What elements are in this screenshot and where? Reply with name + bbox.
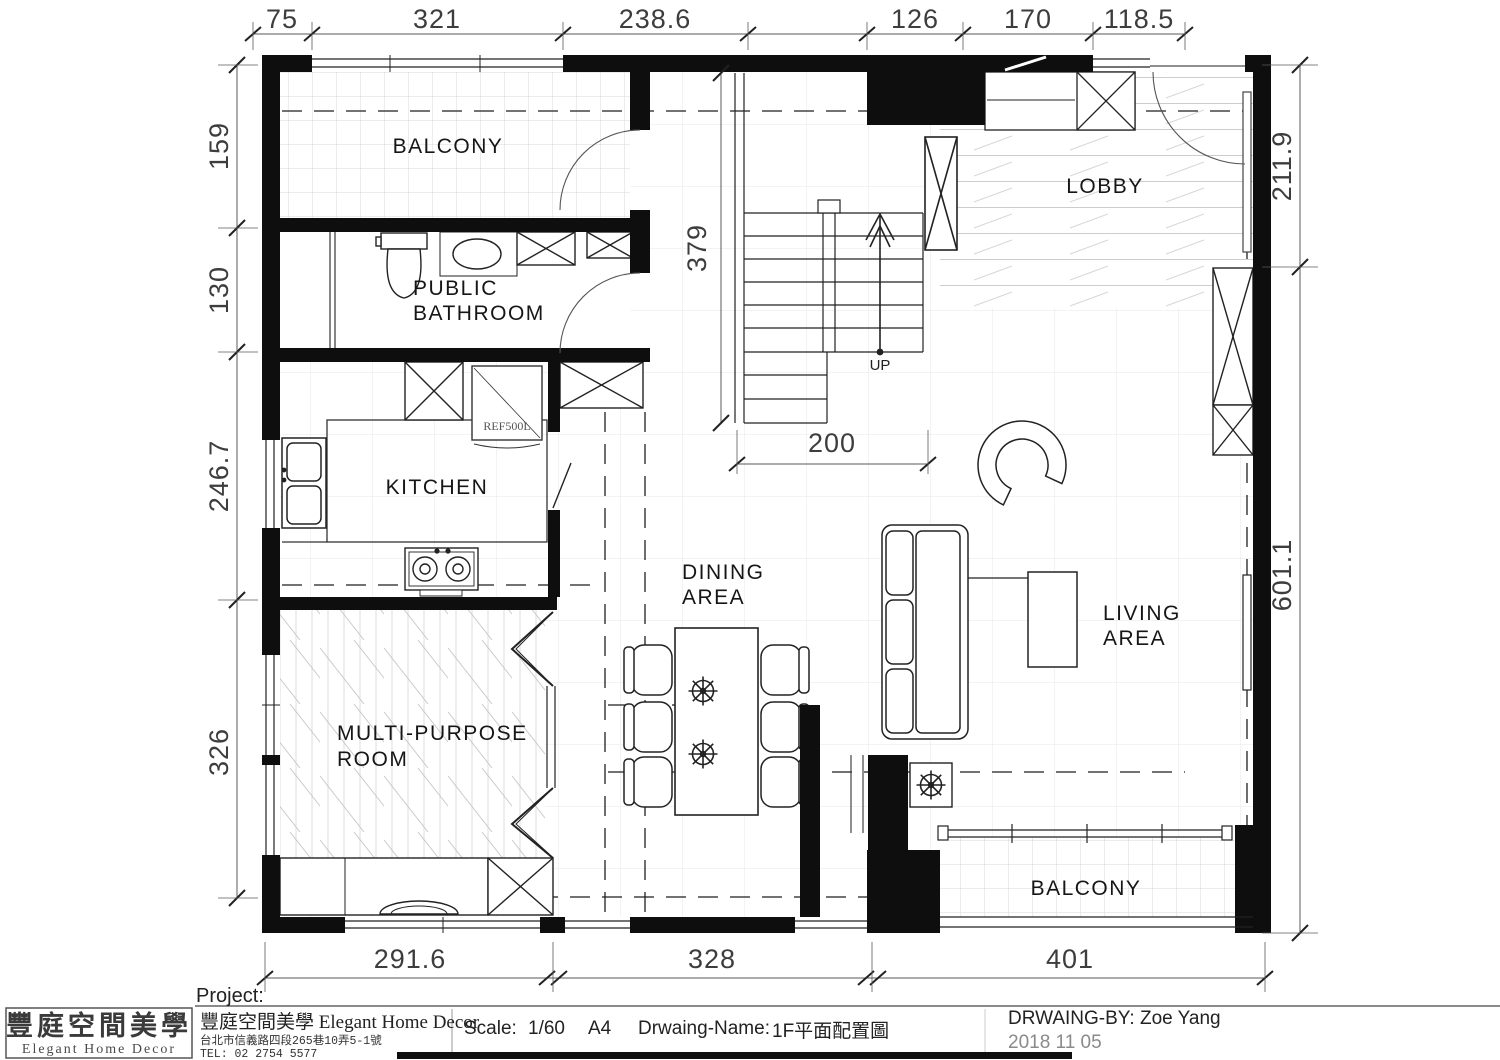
- dining-set: [624, 628, 809, 815]
- dim-label: 238.6: [619, 4, 692, 34]
- mpr-cabinet: [280, 858, 553, 915]
- dim-label: 159: [204, 122, 234, 170]
- living-wall-closets: [1213, 268, 1253, 455]
- stove: [405, 548, 478, 596]
- dim-label: 170: [1004, 4, 1052, 34]
- company-address: 台北市信義路四段265巷10弄5-1號: [200, 1033, 382, 1048]
- dining-chair: [624, 757, 672, 807]
- dim-label: 321: [413, 4, 461, 34]
- dim-label: 118.5: [1104, 4, 1175, 34]
- logo-english-text: Elegant Home Decor: [22, 1042, 176, 1057]
- dim-label: 379: [682, 224, 712, 272]
- drawn-by: DRWAING-BY: Zoe Yang: [1008, 1008, 1221, 1029]
- room-label-multi-1: MULTI-PURPOSE: [337, 722, 528, 745]
- kitchen-sink: [282, 438, 326, 528]
- room-label-dining-1: DINING: [682, 561, 765, 584]
- room-label-kitchen: KITCHEN: [386, 476, 489, 499]
- bottom-window-3: [795, 921, 867, 928]
- dim-label: 126: [891, 4, 939, 34]
- scale-label: Scale:: [464, 1018, 517, 1039]
- dim-label: 75: [266, 4, 298, 34]
- room-label-balcony-top: BALCONY: [393, 135, 504, 158]
- dining-table: [675, 628, 758, 815]
- room-label-living-1: LIVING: [1103, 602, 1181, 625]
- dim-label: 601.1: [1267, 539, 1297, 612]
- dim-label: 291.6: [374, 944, 447, 974]
- room-label-lobby: LOBBY: [1066, 175, 1144, 198]
- room-label-living-2: AREA: [1103, 627, 1166, 650]
- room-label-balcony-bottom: BALCONY: [1031, 877, 1142, 900]
- kitchen-window: [266, 440, 274, 528]
- dim-label: 326: [204, 728, 234, 776]
- title-block: 豐庭空間美學 Elegant Home Decor Project: 豐庭空間美…: [6, 985, 1500, 1060]
- title-block-bottom-bar: [397, 1052, 1072, 1059]
- table-wheel-icon: [689, 740, 718, 769]
- bottom-window-2: [565, 921, 630, 928]
- dim-label: 246.7: [204, 440, 234, 513]
- tv-on-wall: [1243, 575, 1251, 690]
- dining-chair: [761, 645, 809, 695]
- paper-size: A4: [588, 1018, 612, 1039]
- side-table-wheel-icon: [917, 771, 946, 800]
- balcony-top-window: [312, 55, 563, 72]
- room-label-dining-2: AREA: [682, 586, 745, 609]
- drawing-name-value: 1F平面配置圖: [772, 1021, 889, 1042]
- stair-shaft-wall: [867, 55, 985, 125]
- lobby-side-window-frame: [1243, 92, 1251, 252]
- balcony-railing: [940, 917, 1253, 927]
- company-tel: TEL: 02 2754 5577: [200, 1048, 317, 1060]
- stair-duct-box: [925, 137, 957, 250]
- dim-label: 401: [1046, 944, 1094, 974]
- company-name: 豐庭空間美學 Elegant Home Decor: [200, 1011, 480, 1033]
- refrigerator: [472, 366, 542, 448]
- table-wheel-icon: [689, 677, 718, 706]
- bottom-window-1: [345, 917, 540, 933]
- coffee-table: [1028, 572, 1077, 667]
- sofa: [882, 525, 968, 739]
- kitchen-tall-cabinet: [405, 362, 463, 420]
- kitchen-dining-closet: [560, 362, 643, 408]
- project-label: Project:: [196, 985, 264, 1007]
- mpr-window-2: [266, 765, 274, 855]
- drawing-date: 2018 11 05: [1008, 1032, 1102, 1053]
- room-label-bathroom-1: PUBLIC: [413, 277, 498, 300]
- floor-plan-page: 75 321 238.6 126 170 118.5 159 130 246.7…: [0, 0, 1500, 1060]
- fridge-label: REF500L: [483, 419, 530, 433]
- up-label: UP: [870, 357, 891, 374]
- drawing-name-label: Drwaing-Name:: [638, 1018, 770, 1039]
- floor-plan-drawing: 75 321 238.6 126 170 118.5 159 130 246.7…: [0, 0, 1500, 1060]
- dining-chair: [624, 702, 672, 752]
- bathroom-sink: [440, 232, 517, 276]
- room-label-bathroom-2: BATHROOM: [413, 302, 545, 325]
- lobby-closet: [985, 72, 1135, 130]
- mpr-window-1: [262, 655, 280, 755]
- lobby-top-window: [1093, 59, 1150, 67]
- dim-label: 200: [808, 428, 856, 458]
- dining-chair: [624, 645, 672, 695]
- logo-chinese-text: 豐庭空間美學: [6, 1010, 192, 1041]
- scale-value: 1/60: [528, 1018, 565, 1039]
- dim-label: 130: [204, 266, 234, 314]
- dim-label: 211.9: [1267, 131, 1297, 202]
- room-label-multi-2: ROOM: [337, 748, 408, 771]
- dim-label: 328: [688, 944, 736, 974]
